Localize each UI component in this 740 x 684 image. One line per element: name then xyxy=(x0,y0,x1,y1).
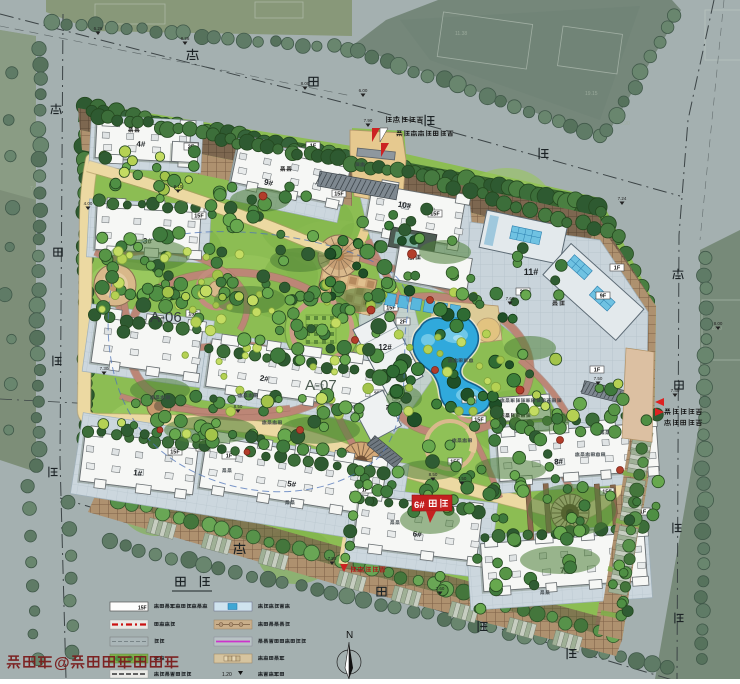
svg-text:8.26: 8.26 xyxy=(181,36,190,41)
svg-text:2F: 2F xyxy=(400,320,407,326)
svg-text:11#: 11# xyxy=(524,267,539,277)
svg-text:N: N xyxy=(346,630,353,641)
svg-text:1F: 1F xyxy=(614,266,621,272)
svg-text:7.90: 7.90 xyxy=(364,118,373,123)
svg-text:1F: 1F xyxy=(226,454,233,460)
svg-text:1#: 1# xyxy=(133,468,143,478)
svg-text:15F: 15F xyxy=(334,192,344,198)
svg-text:A-07: A-07 xyxy=(305,377,337,394)
svg-text:4.00: 4.00 xyxy=(84,201,93,206)
svg-text:7.50: 7.50 xyxy=(594,376,603,381)
svg-text:1.20: 1.20 xyxy=(222,672,232,678)
svg-text:9F: 9F xyxy=(600,294,607,300)
svg-text:8.00: 8.00 xyxy=(714,321,723,326)
svg-text:15F: 15F xyxy=(138,606,147,612)
svg-text:15F: 15F xyxy=(194,214,204,220)
svg-text:4#: 4# xyxy=(136,139,146,148)
svg-text:7.24: 7.24 xyxy=(618,196,627,201)
svg-text:8#: 8# xyxy=(554,457,564,467)
svg-text:11.38: 11.38 xyxy=(455,31,467,37)
svg-text:7.30: 7.30 xyxy=(100,366,109,371)
svg-text:@: @ xyxy=(54,655,70,672)
svg-text:A-06: A-06 xyxy=(150,309,182,326)
svg-text:8.00: 8.00 xyxy=(301,81,310,86)
svg-text:15F: 15F xyxy=(170,450,180,456)
svg-text:7.60: 7.60 xyxy=(506,296,515,301)
svg-text:6#: 6# xyxy=(414,500,425,511)
svg-text:7.40: 7.40 xyxy=(671,388,680,393)
svg-text:2#: 2# xyxy=(259,374,270,384)
svg-text:8.50: 8.50 xyxy=(234,404,243,409)
svg-text:19.15: 19.15 xyxy=(585,91,598,97)
svg-text:7.50: 7.50 xyxy=(458,476,467,481)
svg-text:6.00: 6.00 xyxy=(359,88,368,93)
svg-text:8.50: 8.50 xyxy=(429,472,438,477)
svg-text:7.60: 7.60 xyxy=(436,586,445,591)
svg-text:8.10: 8.10 xyxy=(174,184,183,189)
svg-text:1F: 1F xyxy=(594,368,601,374)
svg-text:7.50: 7.50 xyxy=(328,556,337,561)
svg-text:6.26: 6.26 xyxy=(94,26,103,31)
